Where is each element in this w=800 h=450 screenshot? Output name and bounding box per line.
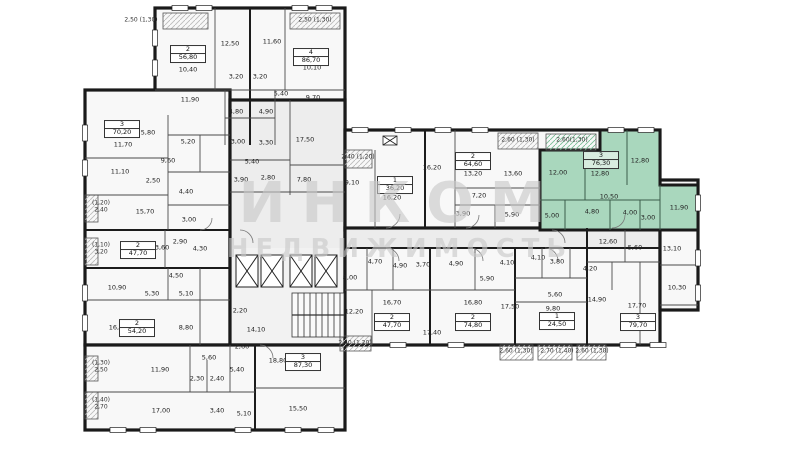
room-area-label: 5,00 — [545, 213, 559, 220]
apartment-label[interactable]: 254,20 — [119, 319, 155, 337]
room-area-label: 7,80 — [297, 177, 311, 184]
room-area-label: 3,20 — [253, 74, 267, 81]
balcony-area-label: 2,70 (1,40) — [540, 349, 573, 356]
balcony-area-label: 2,60(1,30) — [556, 138, 587, 145]
room-area-label: 11,90 — [151, 367, 170, 374]
room-area-label: 2,50 — [146, 178, 160, 185]
room-area-label: 3,00 — [641, 215, 655, 222]
room-area-label: 3,00 — [182, 217, 196, 224]
room-area-label: 14,90 — [588, 297, 607, 304]
room-area-label: 2,90 — [173, 239, 187, 246]
room-area-label: 5,60 — [202, 355, 216, 362]
room-area-label: 5,10 — [179, 291, 193, 298]
room-area-label: 2,30 — [190, 376, 204, 383]
room-area-label: 4,20 — [583, 266, 597, 273]
room-area-label: 16,20 — [423, 165, 442, 172]
room-area-label: 10,50 — [600, 194, 619, 201]
room-area-label: 5,90 — [480, 276, 494, 283]
room-area-label: 5,60 — [548, 292, 562, 299]
room-area-label: 2,40 — [210, 376, 224, 383]
room-area-label: 12,80 — [631, 158, 650, 165]
room-area-label: 16,20 — [383, 195, 402, 202]
room-area-label: 15,50 — [289, 406, 308, 413]
apartment-label[interactable]: 136,20 — [377, 176, 413, 194]
room-area-label: 5,40 — [230, 367, 244, 374]
room-area-label: 3,40 — [210, 408, 224, 415]
room-area-label: 5,40 — [245, 159, 259, 166]
room-area-label: 4,90 — [393, 263, 407, 270]
room-area-label: 2,60 — [235, 344, 249, 351]
room-area-label: 12,20 — [345, 309, 364, 316]
room-area-label: 5,80 — [141, 130, 155, 137]
room-area-label: 12,50 — [221, 41, 240, 48]
room-area-label: 4,90 — [259, 109, 273, 116]
room-area-label: 11,90 — [670, 205, 689, 212]
apartment-label[interactable]: 274,80 — [455, 313, 491, 331]
room-area-label: 11,10 — [111, 169, 130, 176]
room-area-label: 11,90 — [181, 97, 200, 104]
room-area-label: 7,20 — [472, 193, 486, 200]
apartment-label[interactable]: 264,60 — [455, 152, 491, 170]
room-area-label: 13,10 — [663, 246, 682, 253]
room-area-label: 4,80 — [229, 109, 243, 116]
room-area-label: 4,90 — [449, 261, 463, 268]
room-area-label: 10,30 — [668, 285, 687, 292]
apartment-label[interactable]: 256,80 — [170, 45, 206, 63]
balcony-area-label: (1,10) 3,20 — [89, 242, 113, 255]
balcony-area-label: 2,60 (1,30) — [501, 138, 534, 145]
room-area-label: 4,30 — [193, 246, 207, 253]
room-area-label: 12,00 — [549, 170, 568, 177]
room-area-label: 5,60 — [628, 245, 642, 252]
room-area-label: 5,10 — [237, 411, 251, 418]
room-area-label: 16,70 — [383, 300, 402, 307]
room-area-label: 11,70 — [114, 142, 133, 149]
room-area-label: 4,50 — [169, 273, 183, 280]
balcony-area-label: (1,40) 2,70 — [89, 397, 113, 410]
room-area-label: 9,70 — [306, 95, 320, 102]
room-area-label: 4,70 — [368, 259, 382, 266]
room-area-label: 14,10 — [247, 327, 266, 334]
room-area-label: 5,30 — [145, 291, 159, 298]
room-area-label: 3,90 — [234, 177, 248, 184]
room-area-label: 4,40 — [179, 189, 193, 196]
balcony-area-label: 2,40 (1,20) — [338, 341, 371, 348]
apartment-label-selected[interactable]: 376,30 — [583, 151, 619, 169]
floorplan-canvas: 12,5011,6010,4010,1011,903,203,205,409,7… — [0, 0, 800, 450]
room-area-label: 17,50 — [296, 137, 315, 144]
room-area-label: 16,80 — [464, 300, 483, 307]
room-area-label: 4,80 — [585, 209, 599, 216]
apartment-label[interactable]: 370,20 — [104, 120, 140, 138]
room-area-label: 9,60 — [161, 158, 175, 165]
room-area-label: 13,60 — [504, 171, 523, 178]
apartment-label[interactable]: 387,30 — [285, 353, 321, 371]
room-area-label: 5,40 — [274, 91, 288, 98]
balcony-area-label: 2,60 (1,30) — [575, 349, 608, 356]
balcony-area-label: 2,60 (1,30) — [499, 349, 532, 356]
room-area-label: 13,20 — [464, 171, 483, 178]
balcony-area-label: 2,50 (1,30) — [124, 18, 157, 25]
room-area-label: 3,00 — [231, 139, 245, 146]
room-area-label: 12,80 — [591, 171, 610, 178]
room-area-label: 10,90 — [108, 285, 127, 292]
apartment-label[interactable]: 379,70 — [620, 313, 656, 331]
room-area-label: 17,00 — [152, 408, 171, 415]
room-area-label: 3,80 — [550, 259, 564, 266]
apartment-label[interactable]: 247,70 — [374, 313, 410, 331]
room-area-label: 9,10 — [345, 180, 359, 187]
room-area-label: 3,70 — [416, 262, 430, 269]
room-area-label: 3,30 — [259, 140, 273, 147]
balcony-area-label: 2,50 (1,30) — [298, 18, 331, 25]
room-area-label: 3,90 — [456, 211, 470, 218]
room-area-label: 10,40 — [179, 67, 198, 74]
room-area-label: 3,20 — [229, 74, 243, 81]
room-area-label: 8,80 — [179, 325, 193, 332]
apartment-label[interactable]: 486,70 — [293, 48, 329, 66]
room-area-label: 15,70 — [136, 209, 155, 216]
labels-layer: 12,5011,6010,4010,1011,903,203,205,409,7… — [0, 0, 800, 450]
room-area-label: 8,00 — [343, 275, 357, 282]
apartment-label[interactable]: 247,70 — [120, 241, 156, 259]
balcony-area-label: (1,20) 2,40 — [89, 200, 113, 213]
apartment-label[interactable]: 124,50 — [539, 312, 575, 330]
room-area-label: 2,80 — [261, 175, 275, 182]
room-area-label: 2,20 — [233, 308, 247, 315]
room-area-label: 4,00 — [623, 210, 637, 217]
room-area-label: 17,70 — [628, 303, 647, 310]
room-area-label: 11,60 — [263, 39, 282, 46]
room-area-label: 4,10 — [500, 260, 514, 267]
room-area-label: 5,90 — [505, 212, 519, 219]
balcony-area-label: (1,30) 2,50 — [89, 360, 113, 373]
balcony-area-label: 2,40 (1,20) — [341, 155, 374, 162]
room-area-label: 17,40 — [423, 330, 442, 337]
room-area-label: 5,20 — [181, 139, 195, 146]
room-area-label: 17,50 — [501, 304, 520, 311]
room-area-label: 12,60 — [599, 239, 618, 246]
room-area-label: 4,10 — [531, 255, 545, 262]
